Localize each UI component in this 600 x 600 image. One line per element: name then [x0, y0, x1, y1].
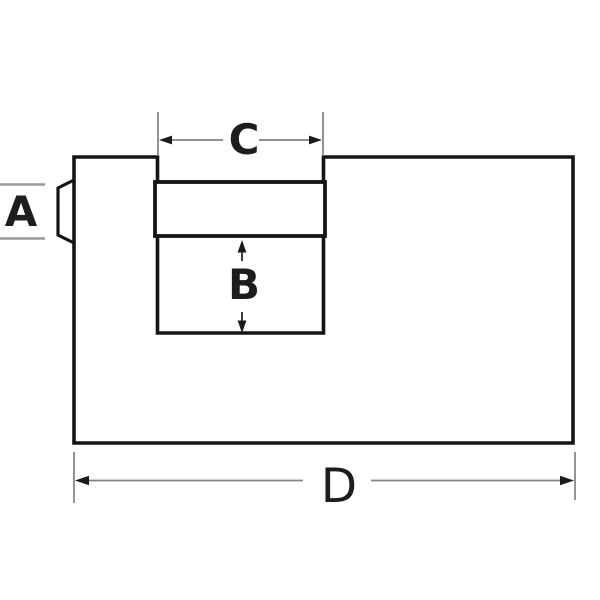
dim-c-label: C: [229, 115, 260, 164]
padlock-dimension-diagram: A C B D: [0, 0, 600, 600]
dim-a-label: A: [5, 187, 38, 236]
shackle-end-tab: [58, 180, 74, 243]
dim-d-label: D: [321, 459, 357, 514]
dim-c-arrow-right-icon: [309, 136, 322, 145]
dimension-c: C: [158, 112, 323, 164]
diagram-canvas: A C B D: [0, 0, 600, 600]
dimension-a: A: [0, 185, 45, 239]
dim-b-arrow-up-icon: [238, 240, 247, 253]
shackle-bar: [155, 182, 325, 236]
dim-d-arrow-left-icon: [75, 476, 89, 486]
dim-b-label: B: [228, 260, 260, 309]
dim-b-arrow-down-icon: [238, 321, 247, 334]
dimension-d: D: [74, 452, 575, 514]
dimension-b: B: [228, 240, 260, 333]
dim-c-arrow-left-icon: [159, 136, 172, 145]
dim-d-arrow-right-icon: [560, 476, 574, 486]
